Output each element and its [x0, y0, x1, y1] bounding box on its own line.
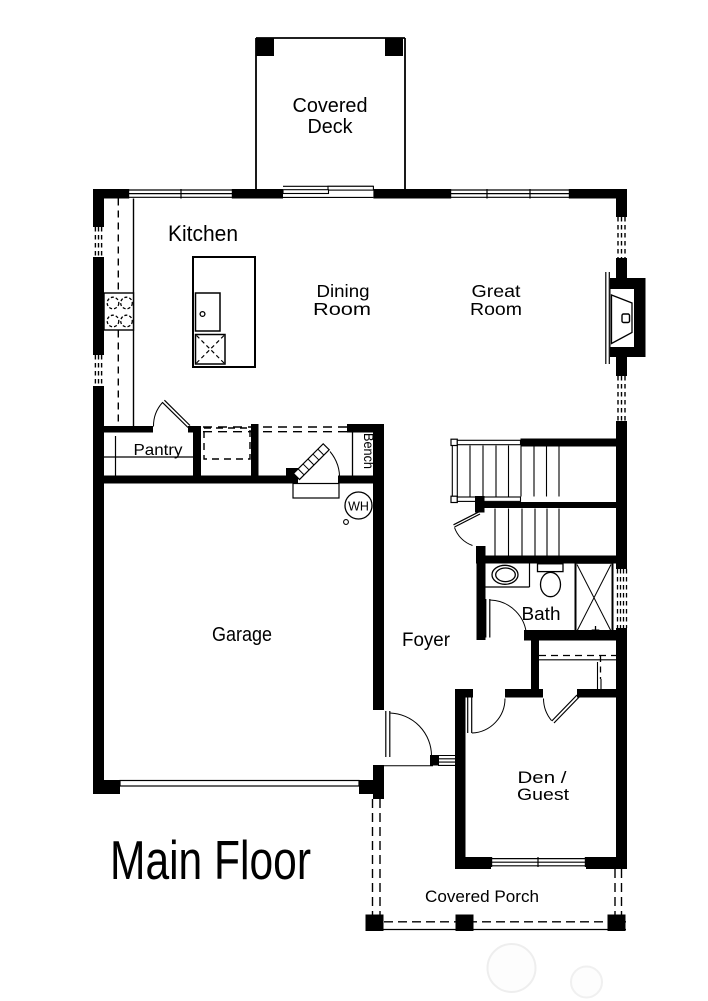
svg-text:Foyer: Foyer — [402, 630, 451, 651]
svg-text:Deck: Deck — [308, 116, 354, 138]
svg-text:Bath: Bath — [522, 604, 561, 624]
svg-text:Covered: Covered — [293, 95, 368, 117]
svg-text:Covered Porch: Covered Porch — [425, 888, 539, 906]
svg-text:Dining: Dining — [317, 281, 370, 301]
svg-text:Pantry: Pantry — [134, 442, 183, 459]
svg-text:Great: Great — [472, 281, 521, 301]
svg-text:Garage: Garage — [212, 624, 272, 646]
svg-text:Guest: Guest — [517, 786, 569, 804]
svg-text:Room: Room — [313, 299, 371, 319]
svg-text:Den /: Den / — [518, 769, 568, 787]
svg-text:Kitchen: Kitchen — [168, 221, 238, 246]
svg-text:WH: WH — [348, 500, 369, 514]
svg-text:Main Floor: Main Floor — [110, 829, 311, 891]
svg-text:Room: Room — [470, 299, 522, 319]
